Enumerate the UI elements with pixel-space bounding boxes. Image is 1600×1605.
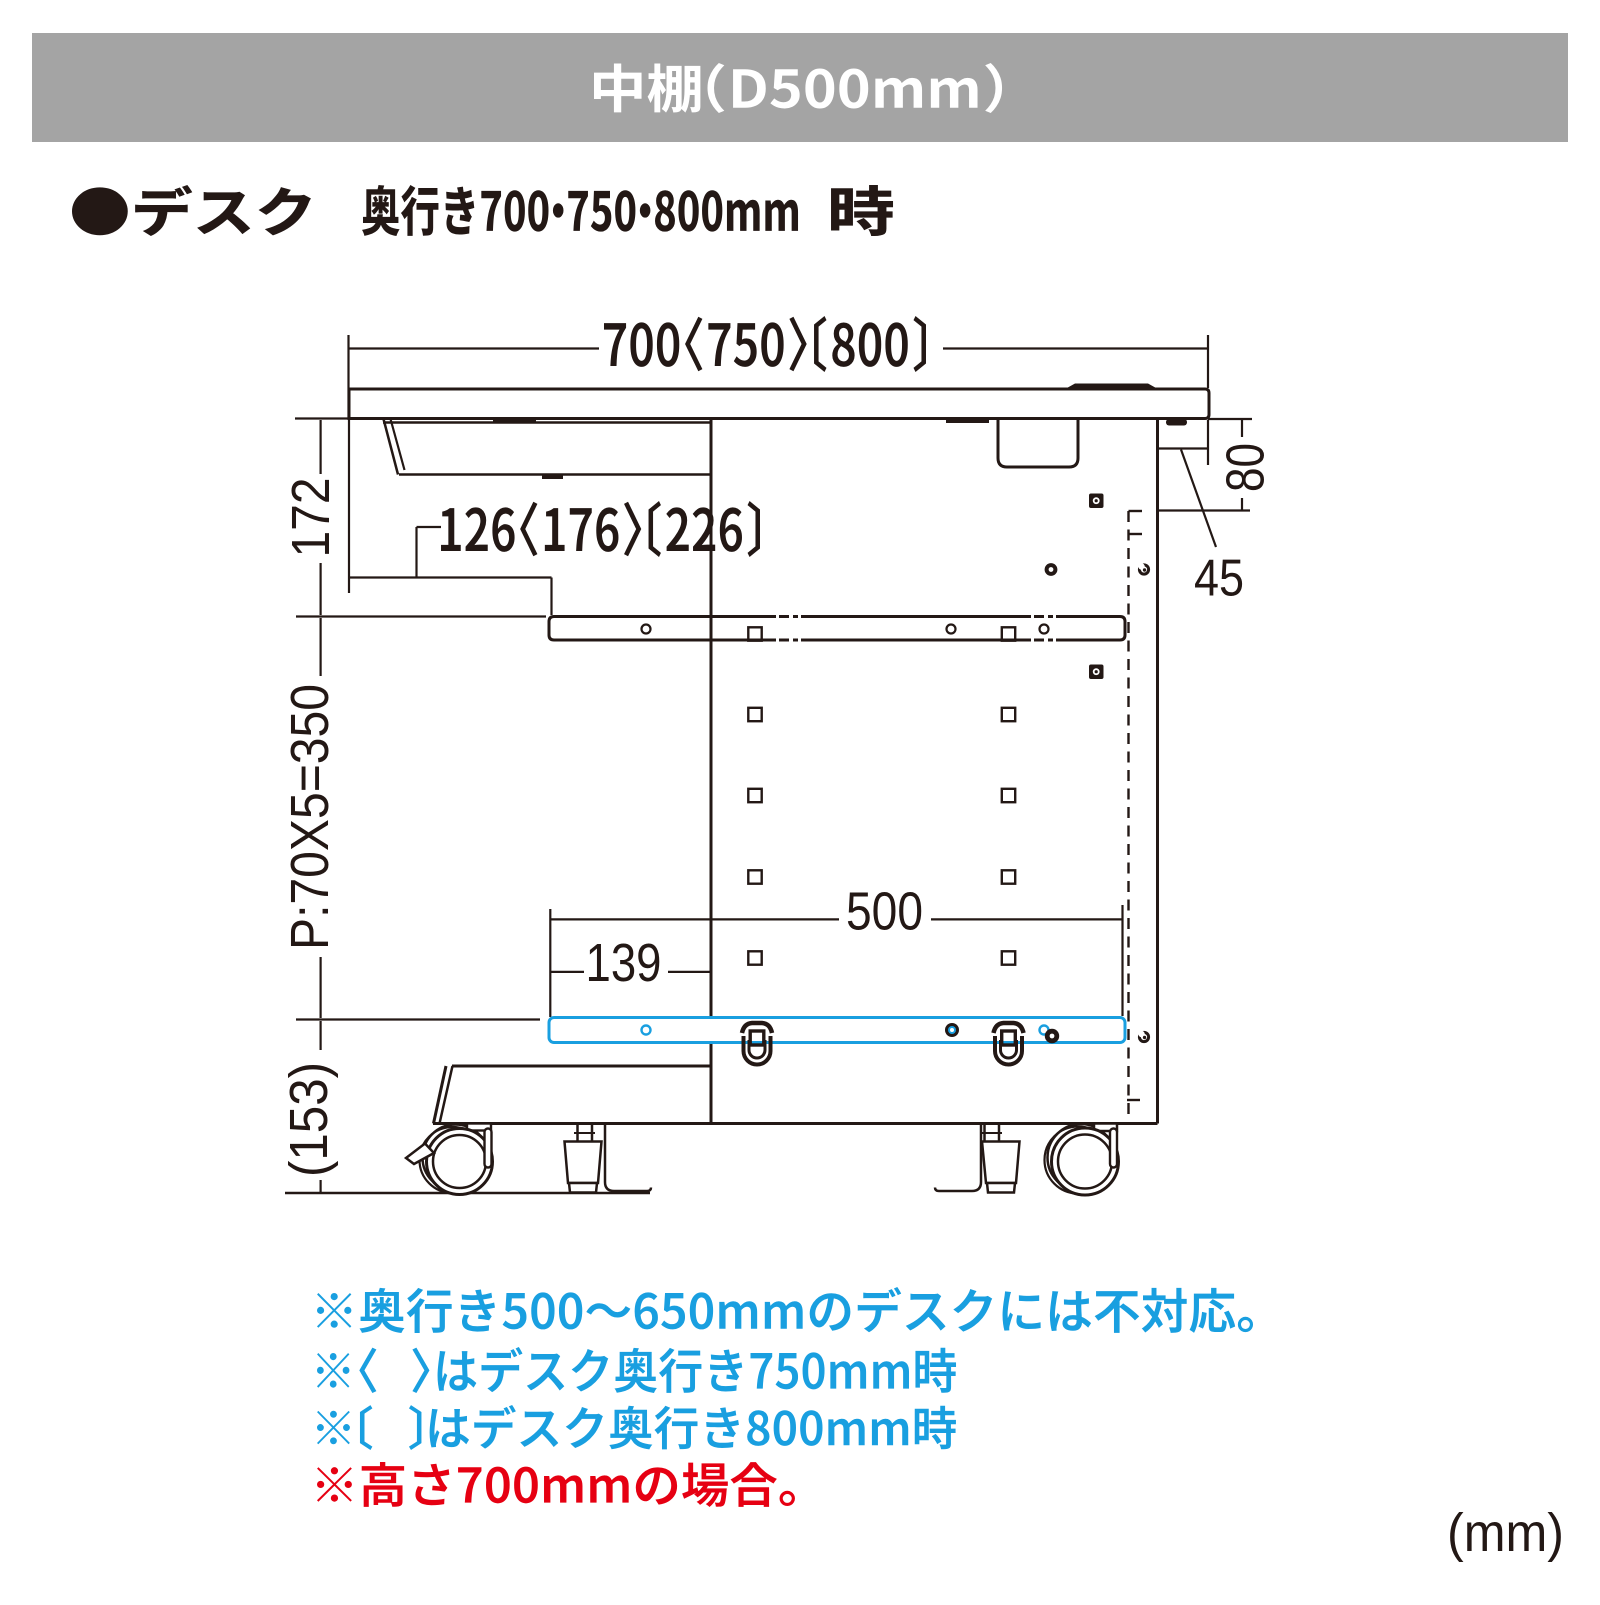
svg-text:80: 80 — [1216, 443, 1276, 492]
svg-text:(153): (153) — [279, 1062, 339, 1177]
svg-text:P:70X5=350: P:70X5=350 — [280, 684, 340, 950]
svg-text:139: 139 — [586, 933, 662, 993]
svg-text:500: 500 — [846, 882, 923, 942]
svg-text:172: 172 — [281, 478, 341, 558]
svg-text:45: 45 — [1194, 550, 1244, 608]
svg-text:(mm): (mm) — [1447, 1503, 1564, 1563]
